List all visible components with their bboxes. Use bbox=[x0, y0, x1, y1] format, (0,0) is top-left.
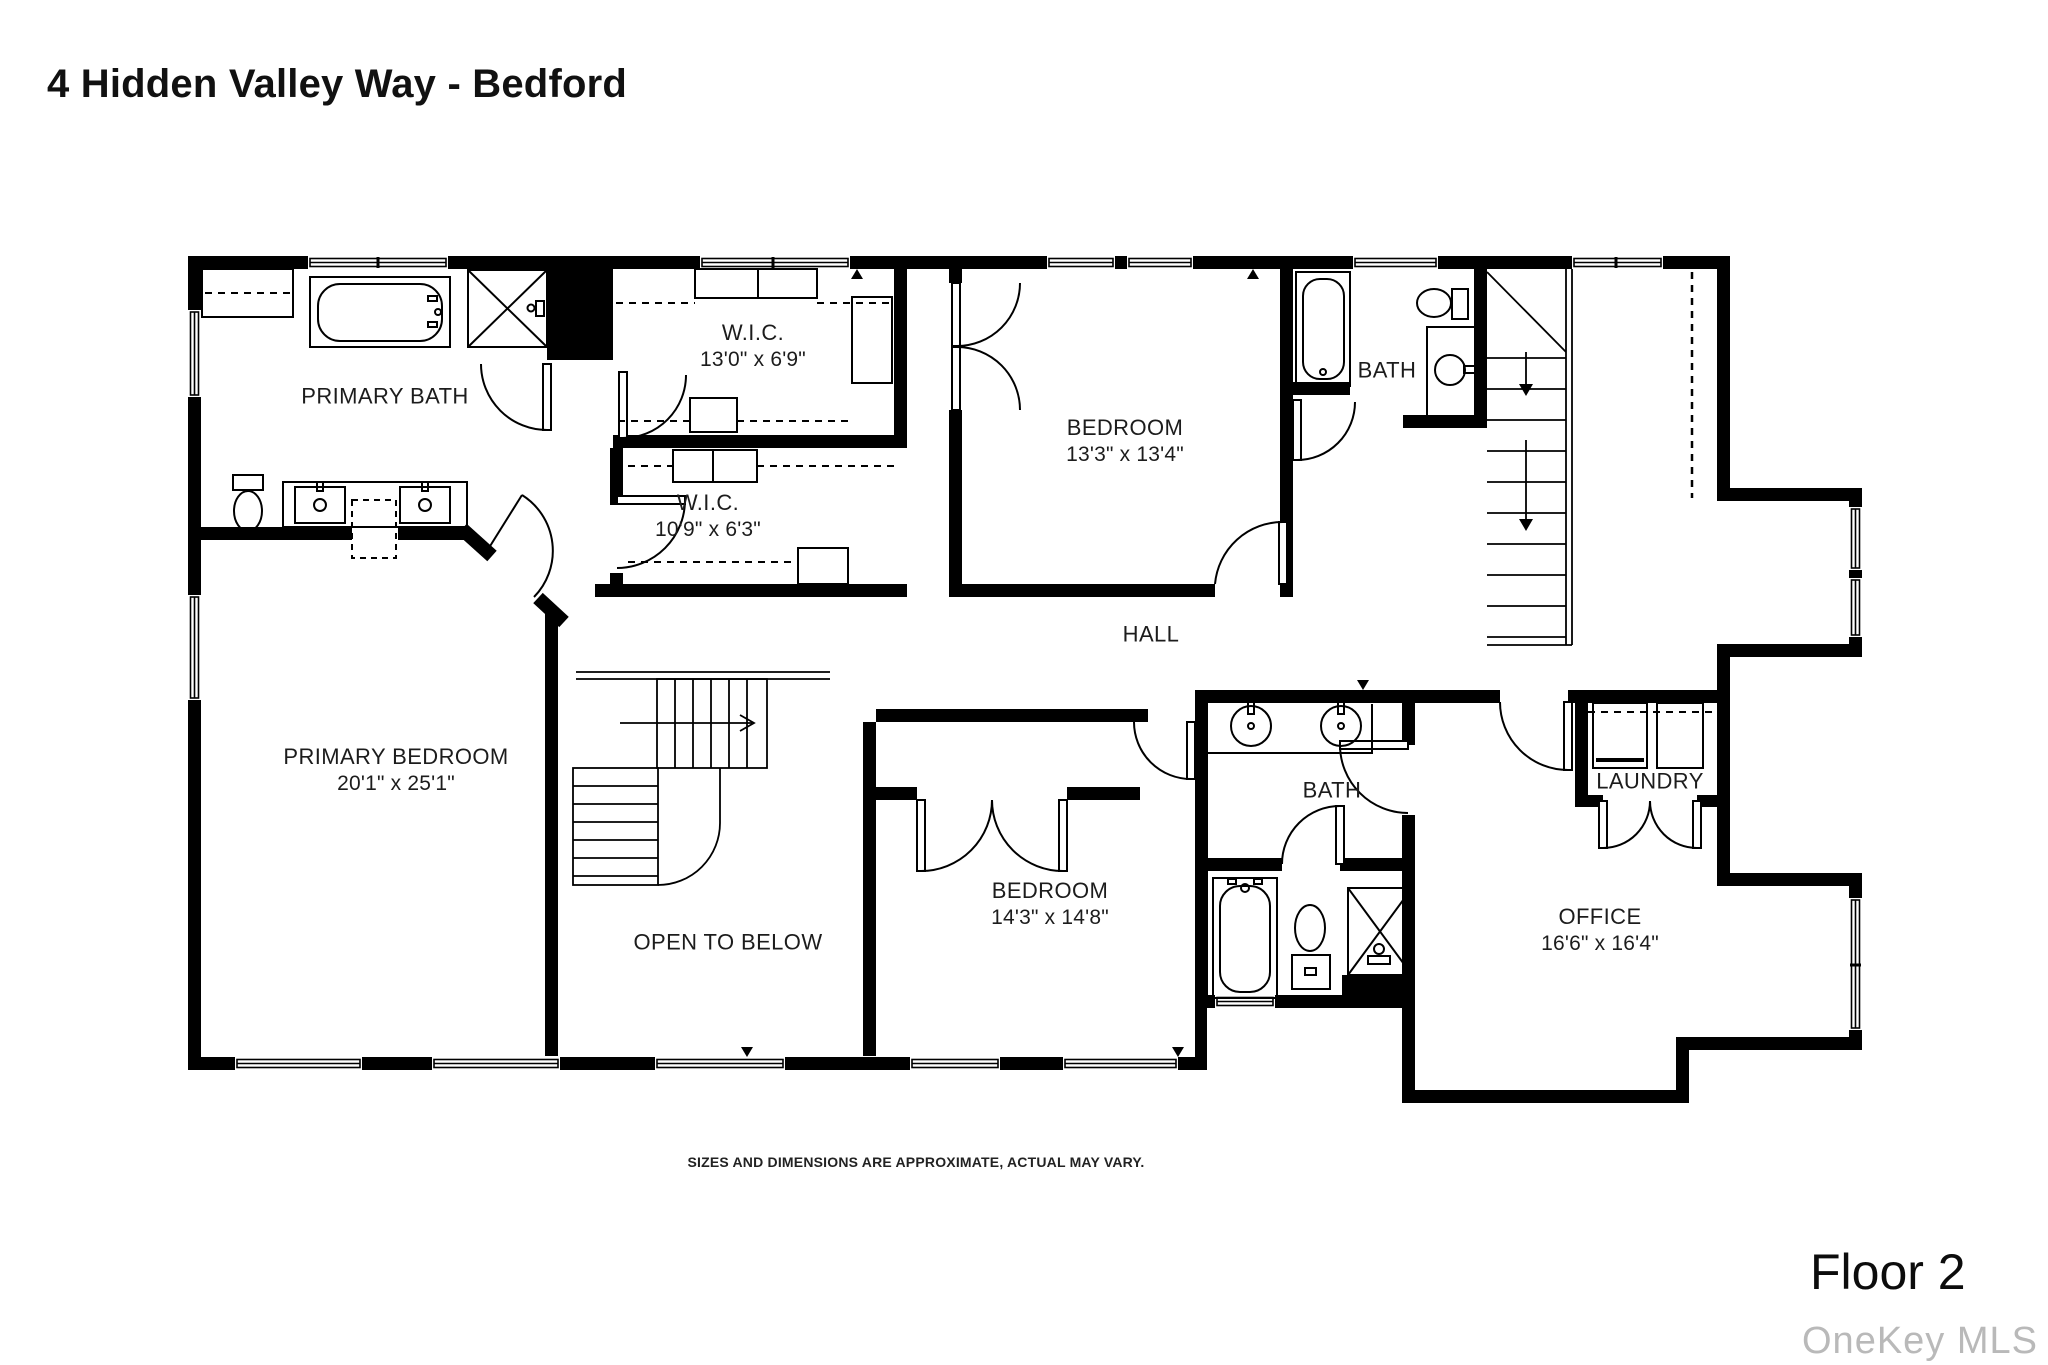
closet bbox=[202, 269, 293, 317]
staircase-open bbox=[573, 672, 830, 885]
room-name: OFFICE bbox=[1558, 904, 1641, 929]
room-label-hall: HALL bbox=[1123, 622, 1180, 649]
vanity-sink bbox=[1427, 327, 1477, 417]
room-label-wic-lower: W.I.C.10'9" x 6'3" bbox=[655, 490, 761, 542]
mls-watermark: OneKey MLS bbox=[1802, 1320, 2038, 1363]
shower bbox=[468, 270, 547, 347]
door bbox=[1293, 400, 1355, 460]
double-sink-counter bbox=[1208, 702, 1372, 753]
toilet bbox=[1417, 289, 1468, 319]
window bbox=[700, 256, 850, 269]
room-label-laundry: LAUNDRY bbox=[1596, 769, 1704, 796]
window bbox=[1849, 507, 1862, 570]
double-door bbox=[1599, 801, 1701, 848]
window bbox=[188, 310, 201, 397]
window bbox=[655, 1057, 785, 1070]
room-label-bath-lower: BATH bbox=[1303, 778, 1362, 805]
door bbox=[1215, 522, 1287, 584]
room-label-office: OFFICE16'6" x 16'4" bbox=[1541, 904, 1659, 956]
door bbox=[619, 372, 686, 438]
room-name: OPEN TO BELOW bbox=[634, 930, 823, 955]
doors bbox=[481, 283, 1701, 871]
room-dimensions: 10'9" x 6'3" bbox=[655, 518, 761, 541]
disclaimer-text: SIZES AND DIMENSIONS ARE APPROXIMATE, AC… bbox=[687, 1154, 1144, 1170]
room-name: BEDROOM bbox=[1067, 415, 1183, 440]
window bbox=[1353, 256, 1438, 269]
door bbox=[481, 364, 551, 430]
room-dimensions: 20'1" x 25'1" bbox=[337, 772, 455, 795]
room-name: BATH bbox=[1358, 358, 1417, 383]
room-label-wic-upper: W.I.C.13'0" x 6'9" bbox=[700, 320, 806, 372]
door bbox=[1500, 702, 1572, 770]
room-name: BATH bbox=[1303, 778, 1362, 803]
room-name: HALL bbox=[1123, 622, 1180, 647]
room-label-primary-bath: PRIMARY BATH bbox=[301, 384, 468, 411]
room-label-bath-upper: BATH bbox=[1358, 358, 1417, 385]
toilet bbox=[1292, 905, 1330, 989]
room-name: LAUNDRY bbox=[1596, 769, 1704, 794]
window bbox=[1047, 256, 1115, 269]
room-dimensions: 16'6" x 16'4" bbox=[1541, 932, 1659, 955]
window bbox=[235, 1057, 362, 1070]
window bbox=[188, 595, 201, 700]
room-dimensions: 13'3" x 13'4" bbox=[1066, 443, 1184, 466]
staircase-main bbox=[1487, 269, 1692, 645]
room-name: W.I.C. bbox=[677, 490, 739, 515]
room-label-bedroom-upper: BEDROOM13'3" x 13'4" bbox=[1066, 415, 1184, 467]
toilet bbox=[233, 475, 263, 531]
wall-markers bbox=[741, 269, 1369, 1057]
double-vanity-sink bbox=[283, 482, 467, 558]
bathtub bbox=[1296, 272, 1350, 386]
bathtub bbox=[1213, 878, 1277, 998]
closet-double-door bbox=[917, 800, 1067, 871]
window bbox=[1849, 898, 1862, 1030]
floor-label: Floor 2 bbox=[1810, 1243, 1966, 1301]
room-name: PRIMARY BEDROOM bbox=[283, 744, 508, 769]
room-label-open-to-below: OPEN TO BELOW bbox=[634, 930, 823, 957]
room-label-primary-bedroom: PRIMARY BEDROOM20'1" x 25'1" bbox=[283, 744, 508, 796]
bathtub bbox=[310, 277, 450, 347]
room-dimensions: 14'3" x 14'8" bbox=[991, 906, 1109, 929]
window bbox=[308, 256, 448, 269]
room-name: PRIMARY BATH bbox=[301, 384, 468, 409]
room-name: BEDROOM bbox=[992, 878, 1108, 903]
double-door bbox=[952, 283, 1020, 410]
room-name: W.I.C. bbox=[722, 320, 784, 345]
window bbox=[1572, 256, 1663, 269]
door bbox=[1282, 806, 1344, 864]
window bbox=[1215, 995, 1275, 1008]
window bbox=[1127, 256, 1193, 269]
door bbox=[1134, 722, 1195, 779]
window bbox=[432, 1057, 560, 1070]
window bbox=[910, 1057, 1000, 1070]
floor-plan-page: 4 Hidden Valley Way - Bedford bbox=[0, 0, 2048, 1365]
door bbox=[487, 495, 553, 597]
room-dimensions: 13'0" x 6'9" bbox=[700, 348, 806, 371]
window bbox=[1849, 578, 1862, 637]
window bbox=[1063, 1057, 1178, 1070]
room-label-bedroom-lower: BEDROOM14'3" x 14'8" bbox=[991, 878, 1109, 930]
